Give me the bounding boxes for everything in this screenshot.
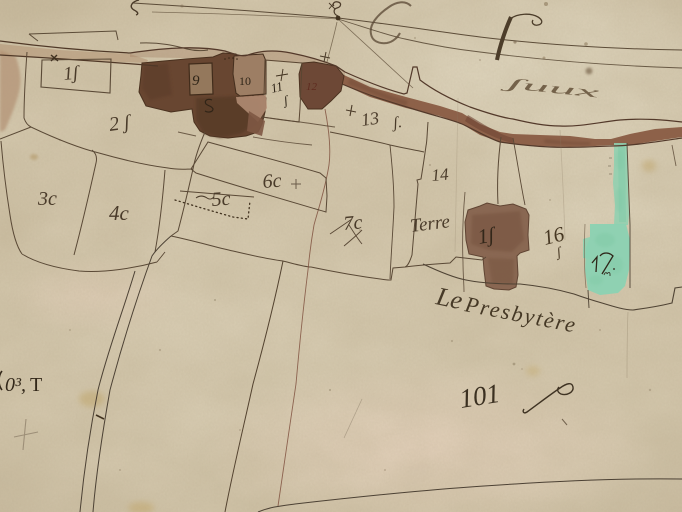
svg-text:13: 13	[360, 108, 381, 130]
svg-text:5c: 5c	[211, 188, 231, 211]
svg-text:T: T	[30, 374, 42, 396]
svg-text:6c: 6c	[262, 170, 282, 193]
svg-text:4c: 4c	[109, 201, 130, 225]
svg-text:14: 14	[431, 165, 450, 185]
svg-text:10: 10	[239, 74, 251, 88]
svg-text:12: 12	[306, 81, 318, 93]
svg-text:3c: 3c	[37, 188, 57, 210]
svg-text:9: 9	[192, 73, 200, 89]
svg-text:0³,: 0³,	[5, 374, 26, 396]
svg-text:101: 101	[457, 378, 502, 414]
